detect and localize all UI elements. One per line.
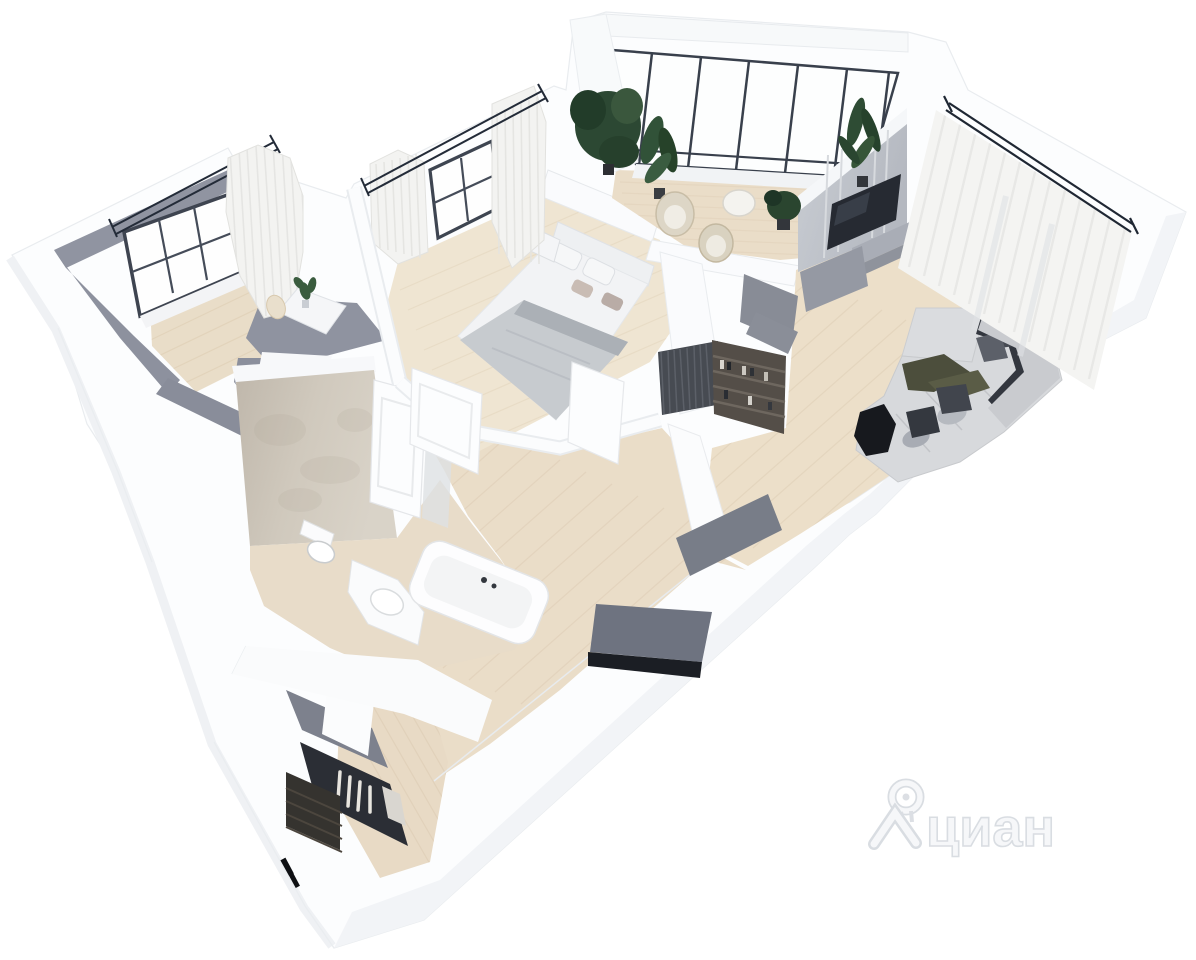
svg-text:циан: циан <box>926 798 1055 858</box>
